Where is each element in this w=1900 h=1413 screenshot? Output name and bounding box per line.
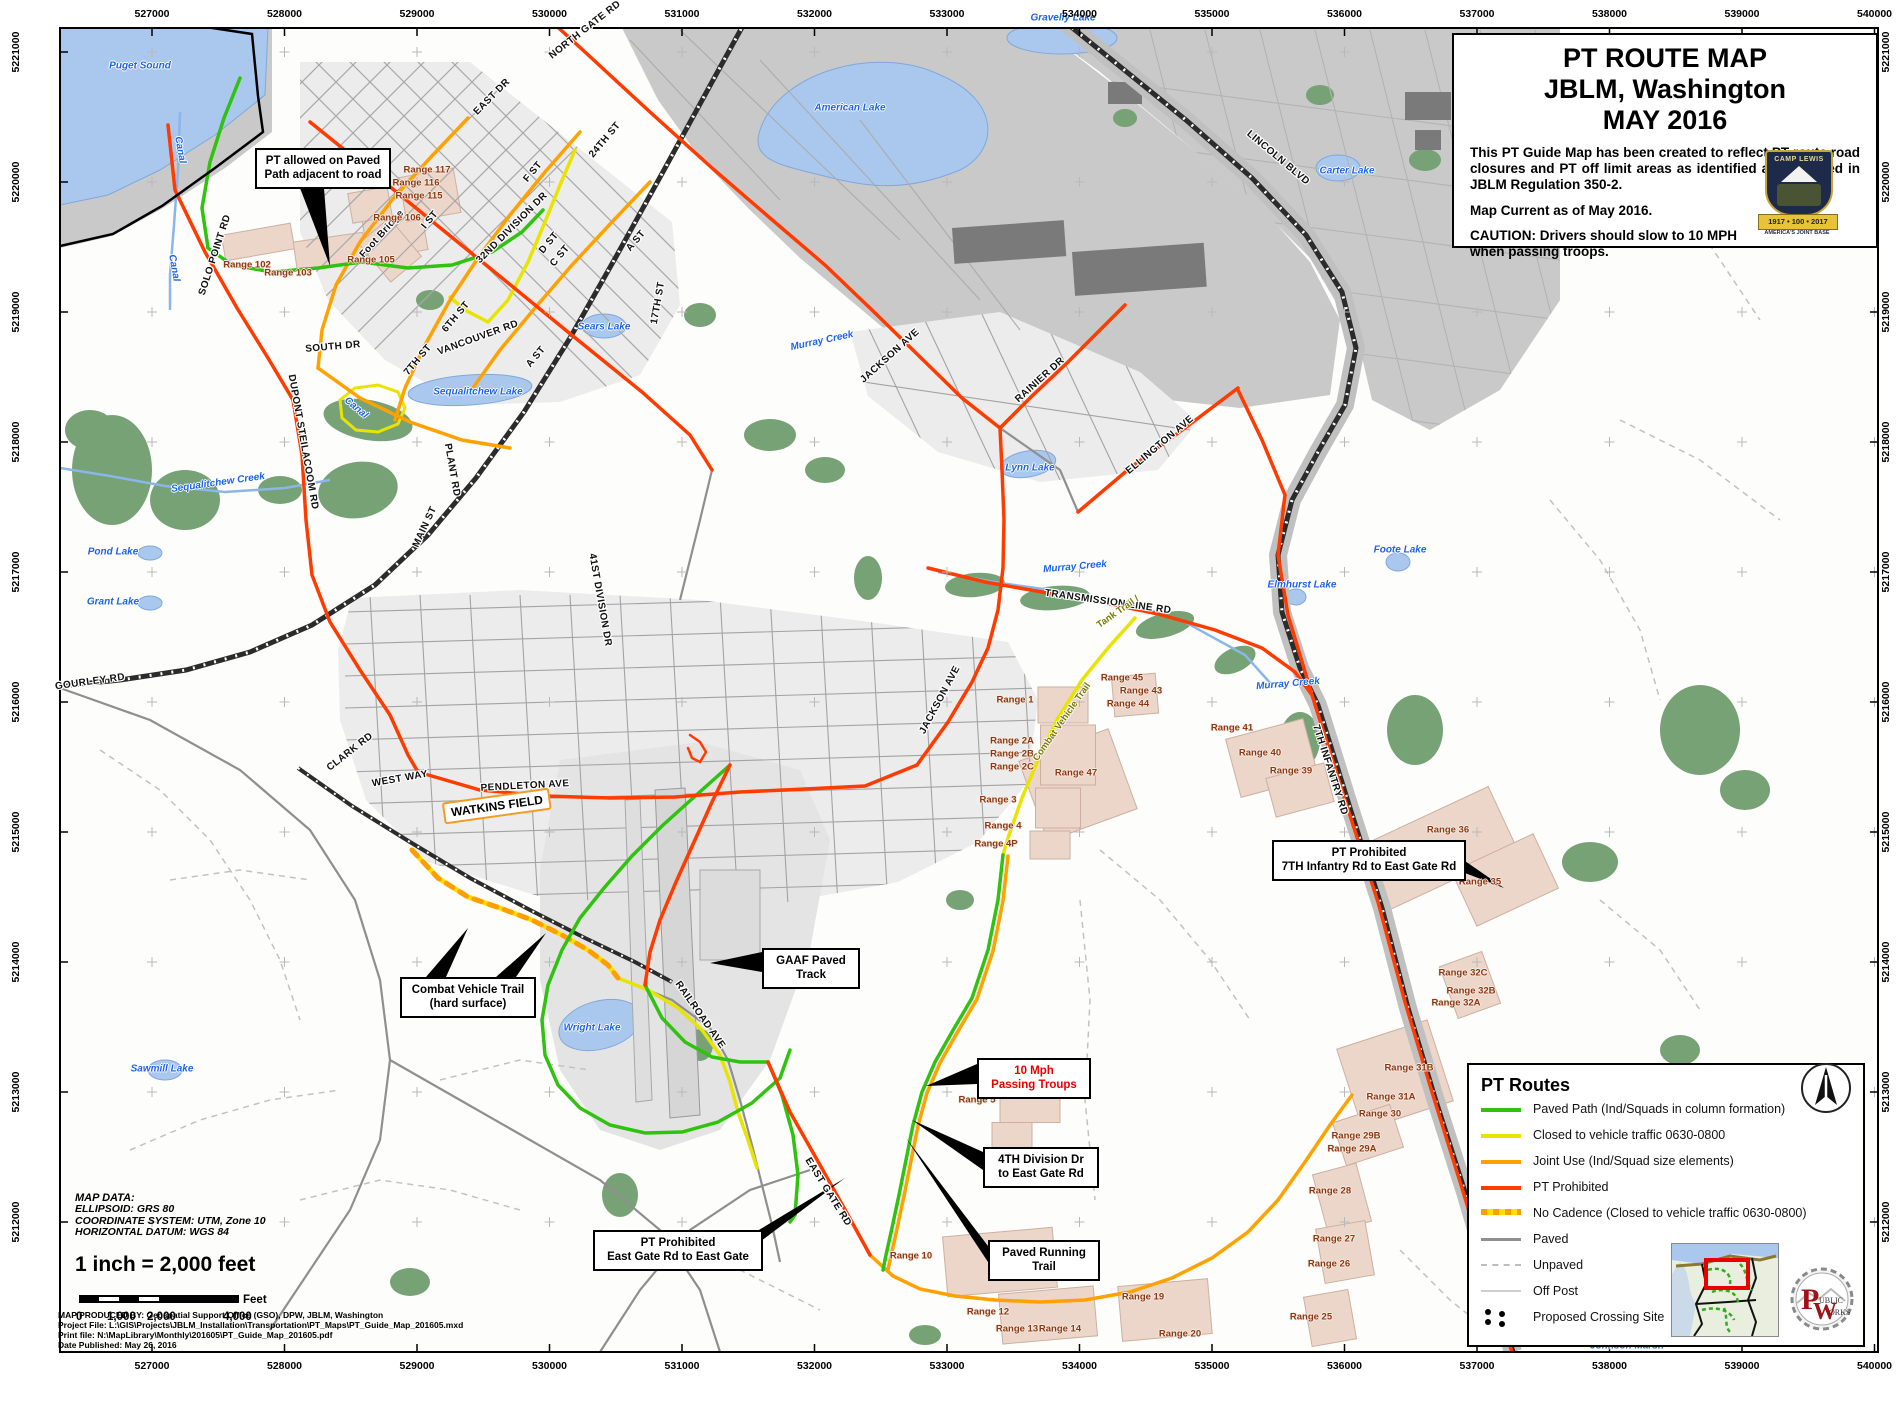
road-label-jackson-ave: JACKSON AVE: [858, 327, 921, 386]
camp-lewis-crest-logo: CAMP LEWIS 1917 • 100 • 2017 AMERICA'S J…: [1758, 144, 1836, 244]
water-label-canal: Canal: [342, 395, 370, 421]
range-label-range-2c: Range 2C: [990, 762, 1034, 773]
grid-label-left-5212000: 5212000: [10, 1202, 22, 1243]
road-label-c-st: C ST: [548, 243, 572, 269]
legend-label-joint-use-ind-squad-size-elements: Joint Use (Ind/Squad size elements): [1533, 1154, 1734, 1168]
road-label-41st-division-dr: 41ST DIVISION DR: [586, 553, 613, 648]
road-label-clark-rd: CLARK RD: [325, 731, 375, 774]
title-box: PT ROUTE MAP JBLM, Washington MAY 2016 T…: [1452, 33, 1878, 248]
water-label-sequalitchew-creek: Sequalitchew Creek: [170, 471, 265, 495]
water-label-puget-sound: Puget Sound: [109, 61, 171, 72]
grid-label-bottom-528000: 528000: [267, 1360, 302, 1372]
legend-label-unpaved: Unpaved: [1533, 1258, 1583, 1272]
legend-item-pt-prohibited: PT Prohibited: [1481, 1174, 1851, 1200]
range-label-range-44: Range 44: [1107, 699, 1149, 710]
grid-label-right-5219000: 5219000: [1880, 292, 1892, 333]
water-label-lynn-lake: Lynn Lake: [1005, 463, 1054, 474]
grid-label-bottom-534000: 534000: [1062, 1360, 1097, 1372]
range-label-range-27: Range 27: [1313, 1234, 1355, 1245]
grid-label-top-537000: 537000: [1459, 8, 1494, 20]
legend-swatch-red-icon: [1481, 1181, 1521, 1193]
credit-line-1: Project File: L:\GIS\Projects\JBLM_Insta…: [58, 1320, 463, 1330]
crest-mountain-icon: [1781, 166, 1817, 182]
callout-gaaf-paved-track-line0: GAAF Paved: [769, 954, 853, 968]
legend-label-proposed-crossing-site: Proposed Crossing Site: [1533, 1310, 1664, 1324]
range-label-range-32b: Range 32B: [1446, 986, 1495, 997]
legend-label-pt-prohibited: PT Prohibited: [1533, 1180, 1609, 1194]
grid-label-right-5218000: 5218000: [1880, 422, 1892, 463]
pt-route-map-page: NORTH GATE RDEAST DR24TH STF STI ST32ND …: [0, 0, 1900, 1413]
callout-gaaf-paved-track: GAAF PavedTrack: [762, 948, 860, 989]
grid-label-top-528000: 528000: [267, 8, 302, 20]
road-label-main-st: MAIN ST: [411, 505, 440, 549]
grid-label-right-5217000: 5217000: [1880, 552, 1892, 593]
water-label-canal: Canal: [172, 136, 188, 165]
grid-label-bottom-538000: 538000: [1592, 1360, 1627, 1372]
road-label-east-gate-rd: EAST GATE RD: [803, 1156, 854, 1228]
grid-label-bottom-530000: 530000: [532, 1360, 567, 1372]
road-label-foot-bridge: Foot Bridge: [358, 208, 407, 260]
road-label-6th-st: 6TH ST: [440, 299, 472, 334]
range-label-range-29b: Range 29B: [1331, 1131, 1380, 1142]
range-label-range-14: Range 14: [1039, 1324, 1081, 1335]
callout-pt-allowed: PT allowed on PavedPath adjacent to road: [255, 148, 391, 189]
callout-ten-mph-line1: Passing Troups: [984, 1078, 1084, 1092]
callout-ten-mph-line0: 10 Mph: [984, 1064, 1084, 1078]
range-label-range-40: Range 40: [1239, 748, 1281, 759]
legend-label-closed-to-vehicle-traffic-0630-0800: Closed to vehicle traffic 0630-0800: [1533, 1128, 1725, 1142]
road-label-south-dr: SOUTH DR: [305, 339, 361, 355]
road-label-railroad-ave: RAILROAD AVE: [673, 979, 728, 1051]
grid-label-bottom-536000: 536000: [1327, 1360, 1362, 1372]
callout-combat-vehicle-trail-line0: Combat Vehicle Trail: [407, 983, 529, 997]
range-label-range-30: Range 30: [1359, 1109, 1401, 1120]
callout-gaaf-paved-track-line1: Track: [769, 968, 853, 982]
road-label-7th-st: 7TH ST: [402, 342, 434, 377]
scale-text: 1 inch = 2,000 feet: [75, 1253, 266, 1277]
range-label-range-2a: Range 2A: [990, 736, 1034, 747]
range-label-range-36: Range 36: [1427, 825, 1469, 836]
road-label-gourley-rd: GOURLEY RD: [54, 672, 125, 693]
range-label-range-2b: Range 2B: [990, 749, 1034, 760]
road-label-solo-point-rd: SOLO POINT RD: [197, 213, 233, 296]
range-label-range-28: Range 28: [1309, 1186, 1351, 1197]
grid-label-top-530000: 530000: [532, 8, 567, 20]
road-label-32nd-division-dr: 32ND DIVISION DR: [474, 190, 550, 266]
map-data-datum: HORIZONTAL DATUM: WGS 84: [75, 1227, 266, 1239]
svg-text:ORKS: ORKS: [1829, 1308, 1850, 1317]
water-label-gravelly-lake: Gravelly Lake: [1030, 13, 1095, 24]
range-label-range-25: Range 25: [1290, 1312, 1332, 1323]
grid-label-right-5212000: 5212000: [1880, 1202, 1892, 1243]
grid-label-bottom-537000: 537000: [1459, 1360, 1494, 1372]
road-label-lincoln-blvd: LINCOLN BLVD: [1244, 129, 1311, 188]
range-label-range-1: Range 1: [997, 695, 1034, 706]
water-label-pond-lake: Pond Lake: [88, 547, 139, 558]
water-label-canal: Canal: [166, 254, 182, 283]
water-label-american-lake: American Lake: [814, 103, 885, 114]
range-label-range-31b: Range 31B: [1384, 1063, 1433, 1074]
map-title-line2: JBLM, Washington: [1470, 74, 1860, 105]
legend-item-closed-to-vehicle-traffic-0630-0800: Closed to vehicle traffic 0630-0800: [1481, 1122, 1851, 1148]
grid-label-top-534000: 534000: [1062, 8, 1097, 20]
grid-label-bottom-539000: 539000: [1724, 1360, 1759, 1372]
credit-line-2: Print file: N:\MapLibrary\Monthly\201605…: [58, 1330, 463, 1340]
public-works-logo: P W UBLIC ORKS: [1785, 1263, 1859, 1335]
trail-label-tank-trail: Tank Trail /: [1095, 593, 1141, 630]
legend-box: PT Routes Paved Path (Ind/Squads in colu…: [1467, 1063, 1865, 1347]
grid-label-top-529000: 529000: [399, 8, 434, 20]
legend-title: PT Routes: [1481, 1075, 1851, 1096]
grid-label-top-531000: 531000: [664, 8, 699, 20]
grid-label-right-5221000: 5221000: [1880, 32, 1892, 73]
road-label-plant-rd: PLANT RD: [442, 443, 462, 498]
grid-label-top-535000: 535000: [1194, 8, 1229, 20]
range-label-range-31a: Range 31A: [1366, 1092, 1415, 1103]
range-label-range-117: Range 117: [404, 165, 451, 176]
callout-paved-running-trail-line0: Paved Running: [995, 1246, 1093, 1260]
callout-fourth-division-line1: to East Gate Rd: [990, 1167, 1092, 1181]
water-label-murray-creek: Murray Creek: [790, 329, 855, 353]
road-label-west-way: WEST WAY: [371, 769, 429, 790]
grid-label-left-5214000: 5214000: [10, 942, 22, 983]
callout-seventh-infantry-prohibited-line0: PT Prohibited: [1279, 846, 1459, 860]
range-label-range-106: Range 106: [373, 213, 421, 224]
road-label-f-st: F ST: [521, 160, 544, 185]
range-label-range-45: Range 45: [1101, 673, 1143, 684]
range-label-range-29a: Range 29A: [1327, 1144, 1376, 1155]
grid-label-top-539000: 539000: [1724, 8, 1759, 20]
legend-label-paved: Paved: [1533, 1232, 1568, 1246]
range-label-range-12: Range 12: [967, 1307, 1009, 1318]
road-label-17th-st: 17TH ST: [649, 281, 667, 325]
water-label-sears-lake: Sears Lake: [578, 322, 631, 333]
callout-east-gate-prohibited-line1: East Gate Rd to East Gate: [600, 1250, 756, 1264]
legend-swatch-offpost-icon: [1481, 1285, 1521, 1297]
callout-combat-vehicle-trail: Combat Vehicle Trail(hard surface): [400, 977, 536, 1018]
north-arrow-icon: [1799, 1061, 1853, 1115]
legend-item-paved: Paved: [1481, 1226, 1851, 1252]
map-data-block: MAP DATA: ELLIPSOID: GRS 80 COORDINATE S…: [75, 1192, 266, 1319]
legend-swatch-unpaved-icon: [1481, 1259, 1521, 1271]
grid-label-left-5220000: 5220000: [10, 162, 22, 203]
water-label-murray-creek: Murray Creek: [1043, 559, 1108, 576]
legend-swatch-yellow-icon: [1481, 1129, 1521, 1141]
crest-castle-icon: [1777, 184, 1821, 206]
callout-pt-allowed-line0: PT allowed on Paved: [262, 154, 384, 168]
legend-item-paved-path-ind-squads-in-column-formation: Paved Path (Ind/Squads in column formati…: [1481, 1096, 1851, 1122]
caution-note: CAUTION: Drivers should slow to 10 MPH w…: [1470, 228, 1770, 260]
credit-line-0: MAP PRODUCED BY: Geospatial Support Offi…: [58, 1310, 463, 1320]
range-label-range-32c: Range 32C: [1438, 968, 1487, 979]
crest-arc-text: CAMP LEWIS: [1767, 156, 1831, 163]
grid-label-top-532000: 532000: [797, 8, 832, 20]
grid-label-left-5217000: 5217000: [10, 552, 22, 593]
map-title-line1: PT ROUTE MAP: [1470, 43, 1860, 74]
grid-label-top-527000: 527000: [134, 8, 169, 20]
grid-label-bottom-531000: 531000: [664, 1360, 699, 1372]
legend-swatch-paved-icon: [1481, 1233, 1521, 1245]
grid-label-left-5218000: 5218000: [10, 422, 22, 463]
road-label-north-gate-rd: NORTH GATE RD: [547, 0, 623, 61]
grid-label-left-5221000: 5221000: [10, 32, 22, 73]
legend-swatch-green-icon: [1481, 1103, 1521, 1115]
water-label-foote-lake: Foote Lake: [1374, 545, 1427, 556]
range-label-range-102: Range 102: [223, 260, 271, 271]
water-label-sawmill-lake: Sawmill Lake: [131, 1064, 194, 1075]
grid-label-left-5213000: 5213000: [10, 1072, 22, 1113]
road-label-ellington-ave: ELLINGTON AVE: [1124, 413, 1196, 476]
range-label-range-43: Range 43: [1120, 686, 1162, 697]
grid-label-top-540000: 540000: [1857, 8, 1892, 20]
credit-line-3: Date Published: May 26, 2016: [58, 1340, 463, 1350]
crest-subtitle: AMERICA'S JOINT BASE: [1758, 230, 1836, 236]
range-label-range-20: Range 20: [1159, 1329, 1201, 1340]
trail-label-combat-vehicle-trail: Combat Vehicle Trail: [1031, 681, 1093, 763]
callout-east-gate-prohibited: PT ProhibitedEast Gate Rd to East Gate: [593, 1230, 763, 1271]
grid-label-bottom-527000: 527000: [134, 1360, 169, 1372]
range-label-range-41: Range 41: [1211, 723, 1253, 734]
water-label-grant-lake: Grant Lake: [87, 597, 139, 608]
grid-label-top-533000: 533000: [929, 8, 964, 20]
range-label-range-39: Range 39: [1270, 766, 1312, 777]
range-label-range-47: Range 47: [1055, 768, 1097, 779]
road-label-a-st: A ST: [524, 344, 548, 369]
callout-paved-running-trail: Paved RunningTrail: [988, 1240, 1100, 1281]
callout-seventh-infantry-prohibited-line1: 7TH Infantry Rd to East Gate Rd: [1279, 860, 1459, 874]
road-label-7th-infantry-rd: 7TH INFANTRY RD: [1310, 723, 1350, 816]
callout-fourth-division-line0: 4TH Division Dr: [990, 1153, 1092, 1167]
grid-label-bottom-532000: 532000: [797, 1360, 832, 1372]
map-data-ellipsoid: ELLIPSOID: GRS 80: [75, 1204, 266, 1216]
road-label-d-st: D ST: [537, 230, 561, 256]
grid-label-left-5219000: 5219000: [10, 292, 22, 333]
callout-fourth-division: 4TH Division Drto East Gate Rd: [983, 1147, 1099, 1188]
map-title-line3: MAY 2016: [1470, 105, 1860, 136]
water-label-sequalitchew-lake: Sequalitchew Lake: [433, 387, 522, 398]
callout-ten-mph: 10 MphPassing Troups: [977, 1058, 1091, 1099]
range-label-range-115: Range 115: [396, 191, 443, 202]
range-label-range-103: Range 103: [264, 268, 312, 279]
range-label-range-116: Range 116: [393, 178, 440, 189]
grid-label-right-5216000: 5216000: [1880, 682, 1892, 723]
grid-label-bottom-535000: 535000: [1194, 1360, 1229, 1372]
legend-swatch-orange-icon: [1481, 1155, 1521, 1167]
svg-text:Feet: Feet: [243, 1294, 267, 1306]
callout-seventh-infantry-prohibited: PT Prohibited7TH Infantry Rd to East Gat…: [1272, 840, 1466, 881]
road-label-east-dr: EAST DR: [472, 77, 513, 118]
range-label-range-4p: Range 4P: [974, 839, 1017, 850]
grid-label-left-5215000: 5215000: [10, 812, 22, 853]
water-label-wright-lake: Wright Lake: [563, 1023, 620, 1034]
crest-banner: 1917 • 100 • 2017: [1758, 214, 1838, 230]
grid-label-right-5214000: 5214000: [1880, 942, 1892, 983]
grid-label-bottom-533000: 533000: [929, 1360, 964, 1372]
grid-label-left-5216000: 5216000: [10, 682, 22, 723]
range-label-range-32a: Range 32A: [1431, 998, 1480, 1009]
callout-east-gate-prohibited-line0: PT Prohibited: [600, 1236, 756, 1250]
legend-label-paved-path-ind-squads-in-column-formation: Paved Path (Ind/Squads in column formati…: [1533, 1102, 1785, 1116]
road-label-transmission-line-rd: TRANSMISSION LINE RD: [1044, 588, 1172, 617]
range-label-range-3: Range 3: [980, 795, 1017, 806]
road-label-pendleton-ave: PENDLETON AVE: [480, 778, 569, 794]
legend-item-no-cadence-closed-to-vehicle-traffic-0630-0800: No Cadence (Closed to vehicle traffic 06…: [1481, 1200, 1851, 1226]
range-label-range-13: Range 13: [996, 1324, 1038, 1335]
range-label-range-26: Range 26: [1308, 1259, 1350, 1270]
place-label-watkins-field: WATKINS FIELD: [442, 788, 552, 825]
svg-text:UBLIC: UBLIC: [1819, 1296, 1843, 1305]
legend-label-off-post: Off Post: [1533, 1284, 1578, 1298]
grid-label-top-536000: 536000: [1327, 8, 1362, 20]
location-inset-map: [1671, 1243, 1779, 1337]
range-label-range-105: Range 105: [347, 255, 395, 266]
water-label-murray-creek: Murray Creek: [1256, 676, 1321, 693]
grid-label-bottom-529000: 529000: [399, 1360, 434, 1372]
road-label-24th-st: 24TH ST: [587, 120, 623, 160]
road-label-a-st: A ST: [624, 228, 648, 253]
road-label-vancouver-rd: VANCOUVER RD: [436, 318, 520, 357]
range-label-range-19: Range 19: [1122, 1292, 1164, 1303]
legend-swatch-dots-icon: [1481, 1311, 1521, 1323]
water-label-elmhurst-lake: Elmhurst Lake: [1268, 580, 1337, 591]
grid-label-bottom-540000: 540000: [1857, 1360, 1892, 1372]
road-label-rainier-dr: RAINIER DR: [1013, 355, 1067, 405]
grid-label-right-5215000: 5215000: [1880, 812, 1892, 853]
legend-item-joint-use-ind-squad-size-elements: Joint Use (Ind/Squad size elements): [1481, 1148, 1851, 1174]
water-label-carter-lake: Carter Lake: [1319, 166, 1374, 177]
legend-label-no-cadence-closed-to-vehicle-traffic-0630-0800: No Cadence (Closed to vehicle traffic 06…: [1533, 1206, 1807, 1220]
range-label-range-4: Range 4: [985, 821, 1022, 832]
road-label-i-st: I ST: [419, 209, 440, 231]
legend-swatch-nocadence-icon: [1481, 1207, 1521, 1219]
map-credits: MAP PRODUCED BY: Geospatial Support Offi…: [58, 1310, 463, 1350]
road-label-jackson-ave: JACKSON AVE: [917, 664, 962, 736]
crest-shield: CAMP LEWIS: [1765, 150, 1833, 216]
callout-pt-allowed-line1: Path adjacent to road: [262, 168, 384, 182]
callout-combat-vehicle-trail-line1: (hard surface): [407, 997, 529, 1011]
callout-paved-running-trail-line1: Trail: [995, 1260, 1093, 1274]
grid-label-right-5220000: 5220000: [1880, 162, 1892, 203]
road-label-dupont-steilacoom-rd: DUPONT STEILACOOM RD: [286, 374, 321, 511]
grid-label-top-538000: 538000: [1592, 8, 1627, 20]
grid-label-right-5213000: 5213000: [1880, 1072, 1892, 1113]
range-label-range-10: Range 10: [890, 1251, 932, 1262]
